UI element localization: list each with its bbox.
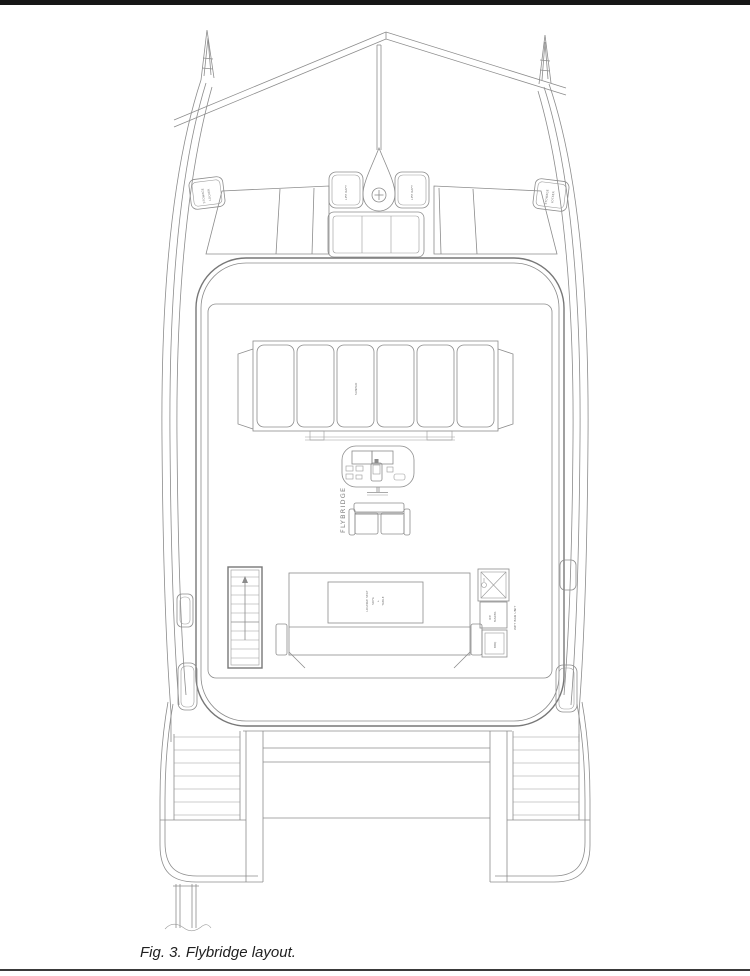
helm-seat [349, 503, 410, 535]
stowage-locker-left: STOWAGE LOCKER [188, 176, 225, 210]
wet-bar-label: WET BAR UNIT [513, 606, 517, 630]
aft-stairs-left [160, 702, 263, 882]
life-raft-box-right: LIFE RAFT [395, 172, 429, 208]
flybridge-layout-drawing: STOWAGE LOCKER STOWAGE LOCKER LIFE RAFT … [0, 0, 750, 976]
sunpad-cushion [297, 345, 334, 427]
sunpad-cushion [377, 345, 414, 427]
svg-text:ICE: ICE [488, 615, 492, 620]
sunpad-cushion [457, 345, 494, 427]
svg-text:SOFA: SOFA [371, 597, 375, 605]
svg-text:+: + [376, 599, 380, 602]
side-gate-right [560, 560, 576, 590]
aft-stairs-right [490, 702, 590, 882]
bow-post-right [539, 35, 551, 84]
aft-deck [160, 702, 590, 931]
life-raft-box-left: LIFE RAFT [329, 172, 363, 208]
corner-step-right [556, 665, 577, 712]
mast-light-icon [372, 188, 386, 202]
grill: BBQ [482, 630, 507, 657]
side-gate-left [177, 594, 193, 627]
helm-display [352, 451, 372, 464]
flybridge-stairs [228, 567, 262, 668]
stowage-locker-right-label: STOWAGE [544, 189, 550, 205]
sunpad-cushion [417, 345, 454, 427]
foredeck [206, 186, 557, 254]
sink [478, 569, 509, 601]
break-line [165, 924, 211, 931]
foredeck-hatch [328, 212, 424, 257]
transom-platform [263, 748, 490, 818]
stowage-locker-right: STOWAGE LOCKER [532, 178, 569, 212]
sunpad: SUNPAD [238, 341, 513, 440]
corner-step-left [178, 663, 197, 710]
sofa-armrest [276, 624, 287, 655]
wet-bar: ICE MAKER BBQ WET BAR UNIT [478, 569, 517, 657]
life-raft-right-label: LIFE RAFT [410, 185, 414, 200]
ice-maker: ICE MAKER [480, 602, 507, 628]
sofa-armrest [471, 624, 482, 655]
manual-page: STOWAGE LOCKER STOWAGE LOCKER LIFE RAFT … [0, 0, 750, 976]
flybridge-label: FLYBRIDGE [339, 487, 347, 533]
lounge-table: LOUNGE SEAT SOFA + TABLE [328, 582, 423, 623]
lounge-sofa: LOUNGE SEAT SOFA + TABLE [276, 573, 482, 668]
hull-outline [162, 30, 588, 742]
svg-text:BBQ: BBQ [493, 641, 497, 648]
flybridge-floor [208, 304, 552, 678]
life-raft-left-label: LIFE RAFT [344, 185, 348, 200]
svg-text:LOCKER: LOCKER [550, 191, 555, 203]
bow-post-left [201, 30, 214, 80]
figure-caption: Fig. 3. Flybridge layout. [140, 944, 296, 961]
throttle-lever [371, 459, 382, 481]
svg-text:MAKER: MAKER [493, 611, 497, 622]
sunpad-cushion [257, 345, 294, 427]
swim-ladder [165, 884, 211, 931]
svg-text:TABLE: TABLE [381, 596, 385, 606]
svg-text:LOCKER: LOCKER [207, 188, 212, 200]
sunpad-label: SUNPAD [354, 383, 358, 395]
stairs-up-arrow-icon [242, 576, 248, 640]
svg-text:LOUNGE SEAT: LOUNGE SEAT [365, 590, 369, 611]
page-bottom-rule [0, 969, 750, 971]
helm-console [305, 437, 455, 495]
mast [363, 45, 395, 211]
faucet-icon [482, 578, 487, 588]
stowage-locker-left-label: STOWAGE [200, 188, 206, 204]
steering-wheel-icon [367, 487, 388, 495]
flybridge-deck [196, 258, 564, 726]
